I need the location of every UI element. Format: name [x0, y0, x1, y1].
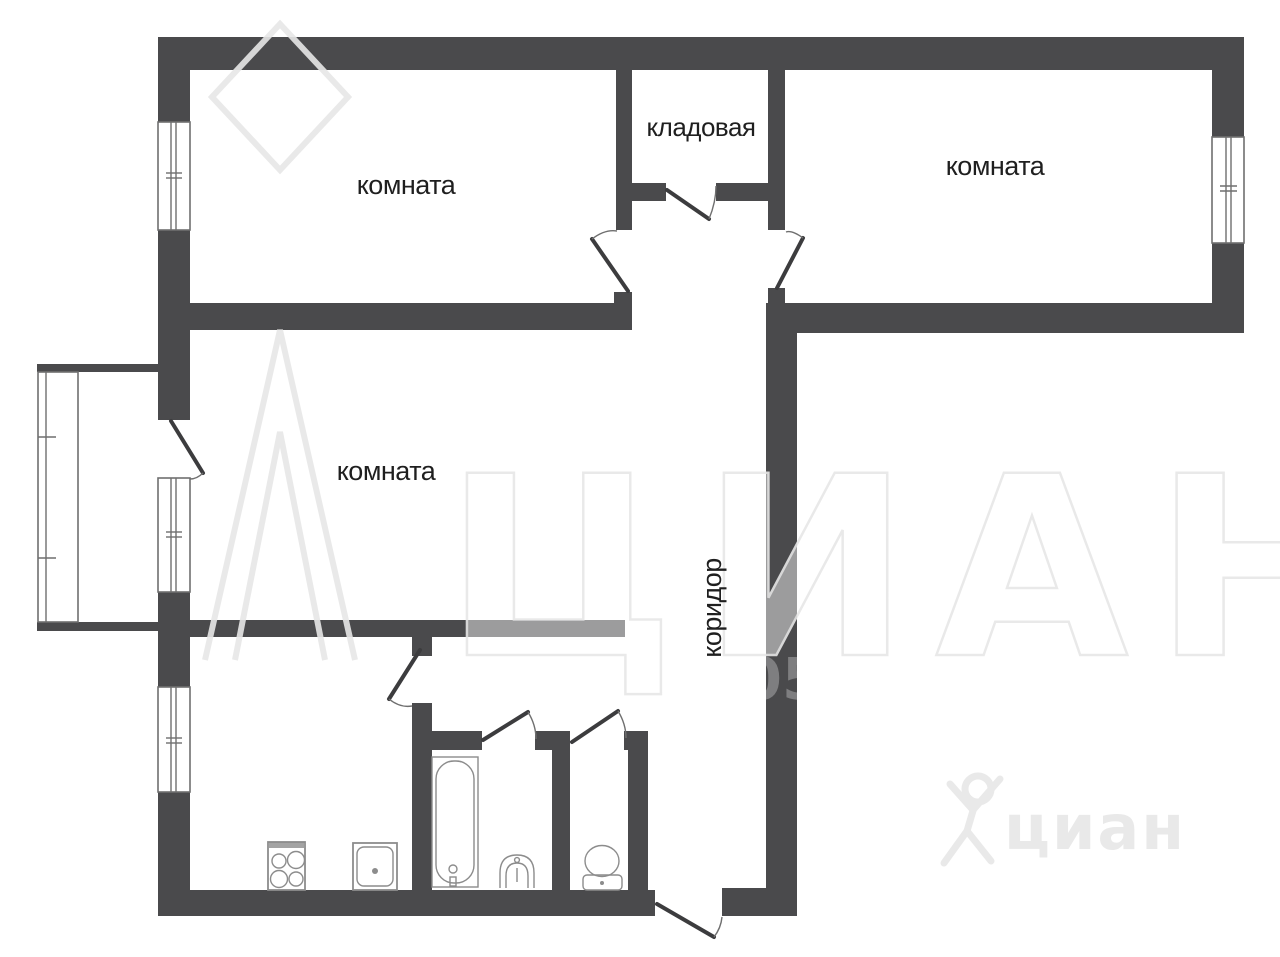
watermark-small-text: циан: [1004, 791, 1186, 864]
wall-toilet-right-lower: [628, 750, 648, 890]
wall-storage-right: [768, 70, 785, 230]
window-topleft-room: [158, 122, 190, 230]
wall-right-upper: [1212, 37, 1244, 137]
label-storage: кладовая: [647, 112, 756, 142]
jamb-kitchen-door: [412, 637, 432, 656]
jamb-topright-room-door: [768, 288, 785, 333]
wall-kitchen-right: [412, 703, 432, 890]
label-room-top-left: комната: [357, 170, 457, 200]
wall-topleft-room-bottom: [158, 303, 632, 330]
wall-storage-bottom-right: [716, 183, 768, 201]
wall-bathroom-top: [432, 731, 482, 750]
sink-drain: [372, 868, 378, 874]
watermark-digits: 05: [742, 645, 823, 713]
kitchen-sink-icon: [353, 843, 397, 890]
window-frame: [1212, 137, 1244, 243]
wall-topright-room-bottom: [766, 303, 1242, 333]
balcony-top-edge: [37, 364, 158, 372]
window-middle-room: [158, 478, 190, 592]
window-topright-room: [1212, 137, 1244, 243]
wall-bath-toilet-divider: [552, 731, 570, 890]
label-room-middle-left: комната: [337, 456, 437, 486]
floor-plan-drawing: ЦИАН 05 комната кладовая комната комната…: [0, 0, 1280, 957]
balcony-bottom-edge: [37, 622, 158, 631]
wall-storage-bottom-left: [632, 183, 666, 201]
balcony-window-frame: [38, 372, 78, 622]
sink-body: [353, 843, 397, 890]
stove-panel: [269, 842, 304, 848]
window-frame: [158, 478, 190, 592]
floor-plan-page: ЦИАН 05 комната кладовая комната комната…: [0, 0, 1280, 957]
watermark-large-text: ЦИАН: [444, 423, 1280, 714]
stove-icon: [268, 842, 305, 890]
balcony-window: [38, 372, 78, 622]
label-corridor: коридор: [697, 558, 727, 658]
window-frame: [158, 687, 190, 792]
wall-left-mid2: [158, 592, 190, 687]
wall-storage-left: [616, 70, 632, 230]
wall-bottom-left: [158, 890, 655, 916]
wall-toilet-right: [624, 731, 648, 750]
window-frame: [158, 122, 190, 230]
label-room-top-right: комната: [946, 151, 1046, 181]
window-kitchen: [158, 687, 190, 792]
toilet-button: [600, 881, 604, 885]
wall-left-upper: [158, 37, 190, 122]
